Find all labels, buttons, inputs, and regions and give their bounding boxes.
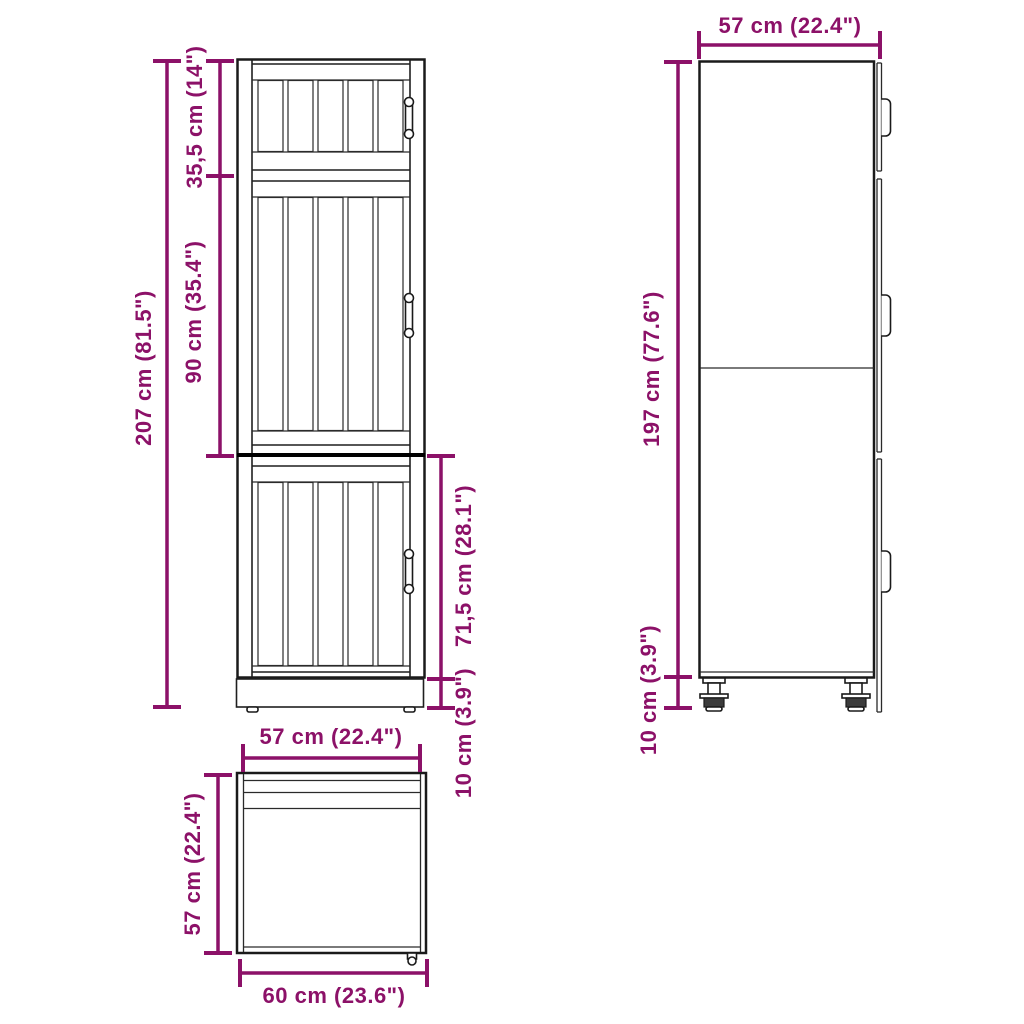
dim-front-plinth-height: 10 cm (3.9") — [451, 668, 477, 798]
dim-top-view-total-width: 60 cm (23.6") — [263, 983, 406, 1009]
line-art — [0, 0, 1024, 1024]
front-door-middle — [252, 181, 410, 445]
front-plinth — [237, 679, 424, 707]
front-foot-right — [404, 707, 415, 712]
side-dimension-lines — [664, 31, 880, 708]
dim-front-top-section-height: 35,5 cm (14") — [182, 46, 208, 189]
top-outline — [237, 773, 426, 953]
dim-front-bottom-section-height: 71,5 cm (28.1") — [451, 485, 477, 647]
front-foot-left — [247, 707, 258, 712]
top-view — [237, 773, 426, 965]
front-view — [237, 60, 426, 713]
side-door-strip — [877, 63, 882, 712]
dim-front-middle-section-height: 90 cm (35.4") — [181, 241, 207, 384]
dim-top-view-depth: 57 cm (22.4") — [180, 793, 206, 936]
door-handle-icon — [405, 98, 414, 139]
front-door-bottom — [252, 466, 410, 672]
dim-side-body-height: 197 cm (77.6") — [639, 291, 665, 447]
door-handle-icon — [405, 550, 414, 594]
cabinet-dimension-diagram: 35,5 cm (14") 90 cm (35.4") 207 cm (81.5… — [0, 0, 1024, 1024]
adjustable-foot-icon — [700, 678, 728, 711]
side-view — [700, 62, 891, 713]
side-carcass — [700, 62, 875, 678]
door-handle-icon — [405, 294, 414, 338]
adjustable-foot-icon — [842, 678, 870, 711]
dim-side-leg-height: 10 cm (3.9") — [636, 625, 662, 755]
side-handle-icon — [882, 99, 891, 136]
side-handle-icon — [882, 295, 891, 336]
dim-front-total-height: 207 cm (81.5") — [131, 290, 157, 446]
dim-side-depth: 57 cm (22.4") — [719, 13, 862, 39]
front-door-top — [252, 64, 410, 170]
side-handle-icon — [882, 551, 891, 592]
dim-top-view-width: 57 cm (22.4") — [260, 724, 403, 750]
handle-knob-icon — [408, 953, 417, 965]
